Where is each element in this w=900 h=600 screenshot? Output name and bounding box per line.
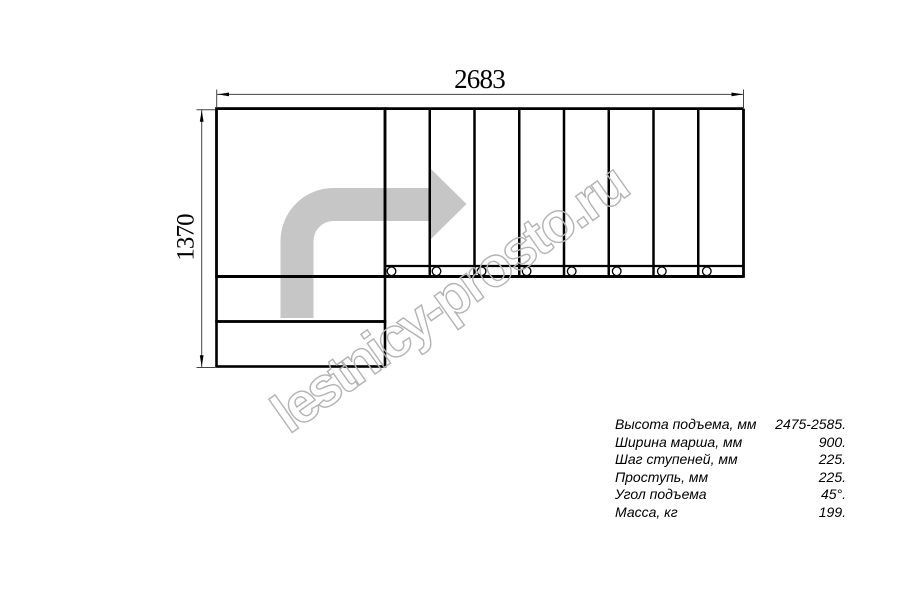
- svg-text:2683: 2683: [454, 64, 505, 94]
- svg-text:1370: 1370: [173, 214, 200, 261]
